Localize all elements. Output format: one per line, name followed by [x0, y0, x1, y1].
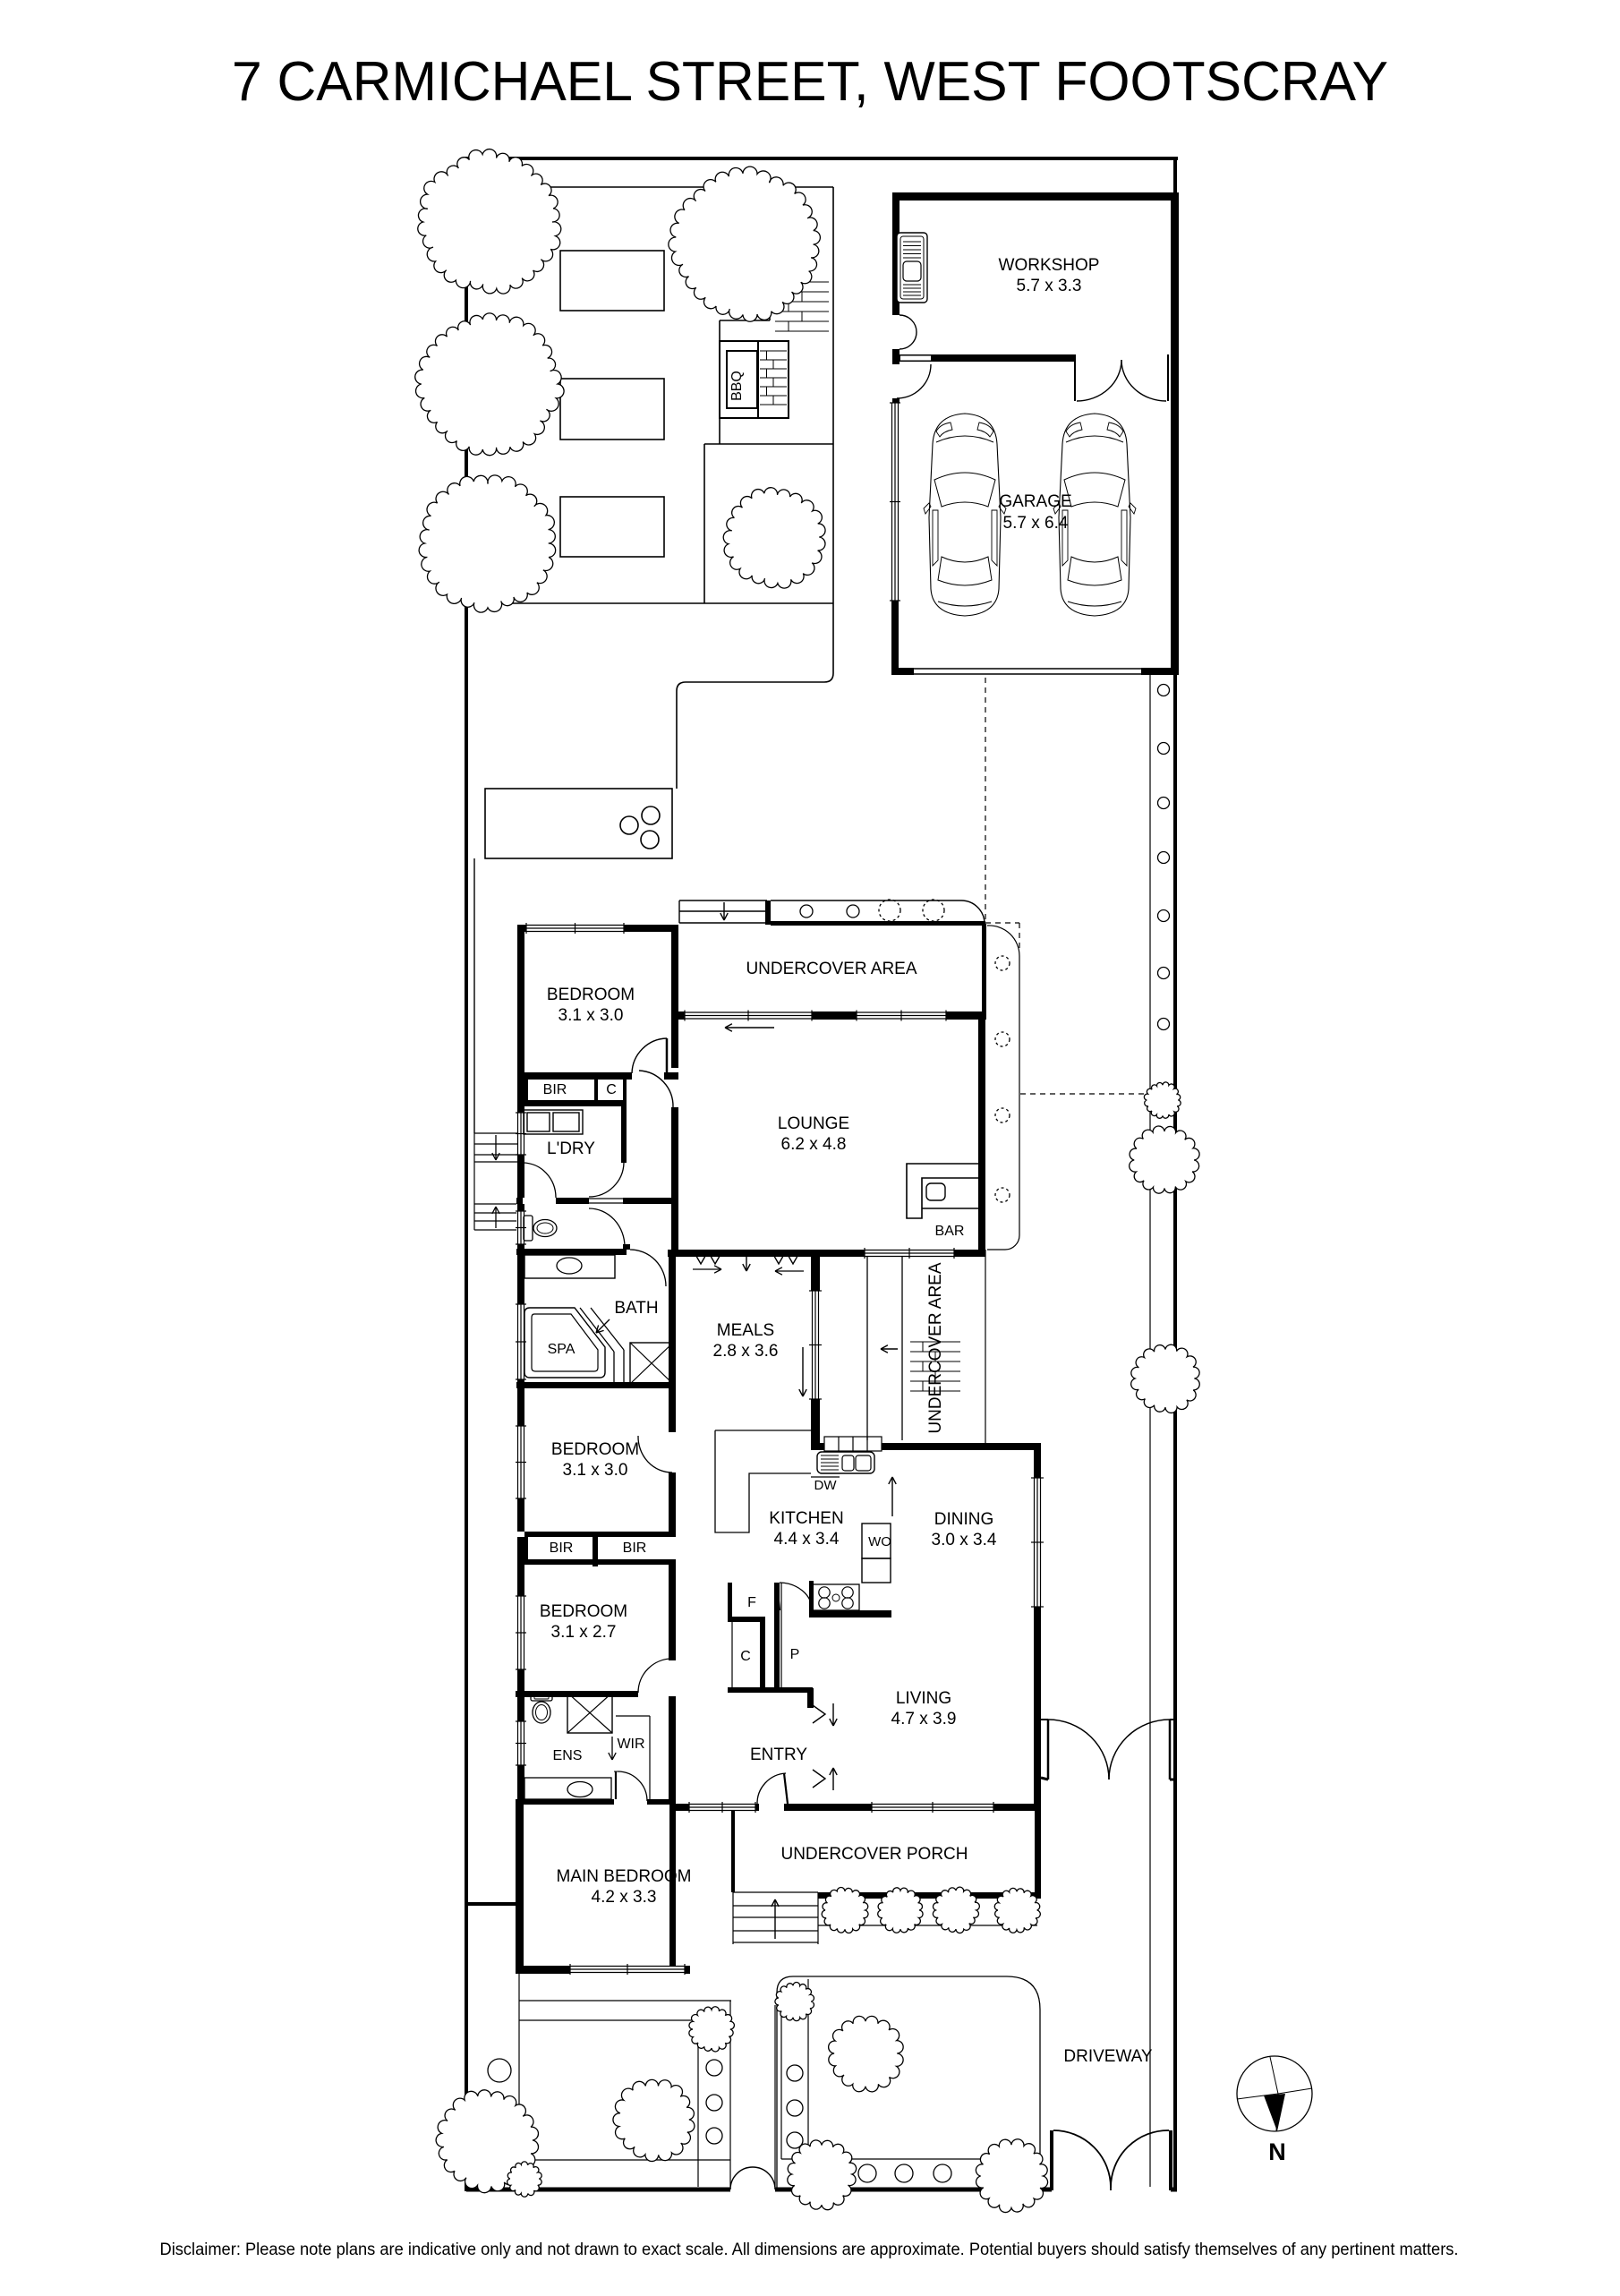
svg-text:SPA: SPA: [548, 1342, 576, 1357]
svg-text:4.2 x 3.3: 4.2 x 3.3: [592, 1888, 657, 1907]
svg-text:BEDROOM: BEDROOM: [551, 1440, 639, 1459]
svg-text:4.7 x 3.9: 4.7 x 3.9: [891, 1710, 957, 1728]
svg-text:MEALS: MEALS: [717, 1321, 774, 1340]
svg-text:Disclaimer: Please note plans: Disclaimer: Please note plans are indica…: [160, 2241, 1459, 2259]
svg-text:7 CARMICHAEL STREET, WEST FOOT: 7 CARMICHAEL STREET, WEST FOOTSCRAY: [232, 51, 1388, 113]
svg-text:ENS: ENS: [553, 1748, 583, 1763]
svg-text:C: C: [606, 1082, 617, 1097]
svg-text:DINING: DINING: [934, 1510, 994, 1529]
svg-text:BATH: BATH: [614, 1299, 658, 1318]
svg-text:3.0 x 3.4: 3.0 x 3.4: [932, 1531, 997, 1549]
svg-text:P: P: [790, 1647, 800, 1662]
svg-text:BIR: BIR: [623, 1541, 647, 1556]
svg-text:WORKSHOP: WORKSHOP: [999, 256, 1100, 275]
svg-text:BBQ: BBQ: [729, 371, 745, 401]
svg-text:L'DRY: L'DRY: [547, 1139, 595, 1158]
svg-text:3.1 x 2.7: 3.1 x 2.7: [551, 1623, 617, 1642]
svg-text:3.1 x 3.0: 3.1 x 3.0: [558, 1006, 624, 1025]
svg-text:N: N: [1268, 2138, 1286, 2165]
svg-text:WO: WO: [868, 1534, 891, 1549]
svg-text:WIR: WIR: [617, 1737, 644, 1752]
svg-text:MAIN BEDROOM: MAIN BEDROOM: [557, 1867, 692, 1886]
svg-text:GARAGE: GARAGE: [999, 492, 1071, 511]
svg-text:BEDROOM: BEDROOM: [540, 1602, 627, 1621]
svg-text:C: C: [740, 1649, 751, 1664]
svg-text:LOUNGE: LOUNGE: [778, 1114, 849, 1133]
svg-text:ENTRY: ENTRY: [750, 1745, 807, 1764]
svg-text:KITCHEN: KITCHEN: [769, 1509, 843, 1528]
svg-text:BIR: BIR: [550, 1541, 574, 1556]
svg-text:3.1 x 3.0: 3.1 x 3.0: [563, 1461, 628, 1480]
svg-text:F: F: [747, 1595, 756, 1610]
svg-text:BAR: BAR: [935, 1224, 965, 1239]
svg-text:LIVING: LIVING: [896, 1689, 951, 1708]
svg-text:2.8 x 3.6: 2.8 x 3.6: [713, 1342, 779, 1361]
svg-text:BEDROOM: BEDROOM: [547, 986, 635, 1004]
svg-text:UNDERCOVER AREA: UNDERCOVER AREA: [926, 1262, 945, 1433]
svg-text:6.2 x 4.8: 6.2 x 4.8: [781, 1135, 847, 1154]
svg-text:4.4 x 3.4: 4.4 x 3.4: [774, 1530, 840, 1549]
svg-text:DRIVEWAY: DRIVEWAY: [1063, 2047, 1153, 2066]
svg-text:BIR: BIR: [543, 1082, 567, 1097]
svg-text:5.7 x 3.3: 5.7 x 3.3: [1017, 277, 1082, 295]
svg-text:UNDERCOVER AREA: UNDERCOVER AREA: [746, 960, 917, 978]
svg-text:UNDERCOVER PORCH: UNDERCOVER PORCH: [780, 1845, 968, 1864]
svg-text:DW: DW: [814, 1478, 838, 1493]
